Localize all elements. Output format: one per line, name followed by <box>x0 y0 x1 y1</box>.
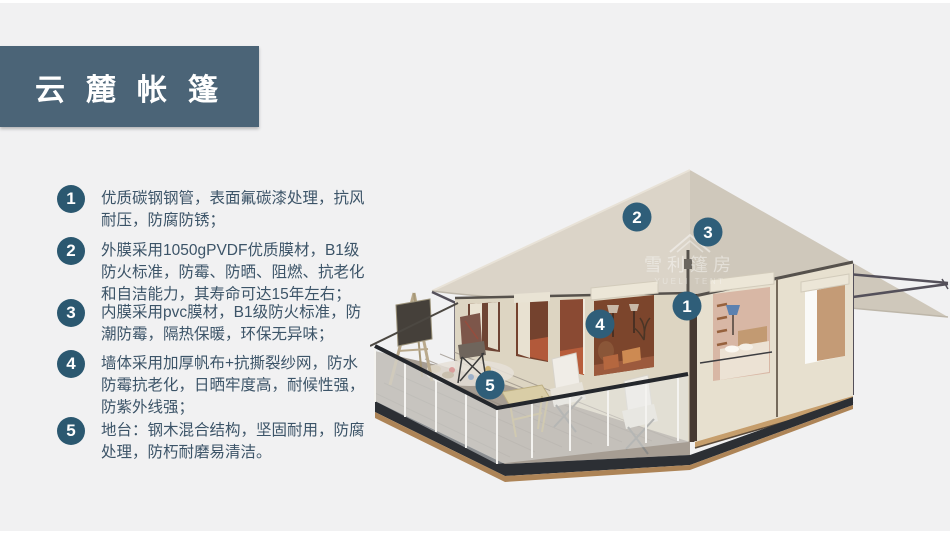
watermark-en-text: YUELI TENT <box>654 277 725 286</box>
feature-text: 内膜采用pvc膜材，B1级防火标准，防潮防霉，隔热保暖，环保无异味； <box>101 302 373 346</box>
feature-item-1: 1 优质碳钢钢管，表面氟碳漆处理，抗风耐压，防腐防锈； <box>57 188 387 232</box>
feature-item-4: 4 墙体采用加厚帆布+抗撕裂纱网，防水防霉抗老化，日晒牢度高，耐候性强，防紫外线… <box>57 353 387 419</box>
badge-number: 3 <box>66 303 75 323</box>
svg-text:3: 3 <box>703 223 712 242</box>
tent-right-wall <box>695 262 853 448</box>
floor-pouf <box>442 372 454 379</box>
watermark-cn-text: 雪利篷房 <box>644 255 736 275</box>
feature-number-badge: 5 <box>57 417 85 445</box>
feature-item-5: 5 地台：钢木混合结构，坚固耐用，防腐处理，防朽耐磨易清洁。 <box>57 420 387 464</box>
svg-text:5: 5 <box>485 376 494 395</box>
badge-number: 4 <box>66 354 75 374</box>
feature-item-3: 3 内膜采用pvc膜材，B1级防火标准，防潮防霉，隔热保暖，环保无异味； <box>57 302 387 346</box>
tent-marker-5: 5 <box>476 371 505 400</box>
slide-background: 云麓帐篷 1 优质碳钢钢管，表面氟碳漆处理，抗风耐压，防腐防锈； 2 外膜采用1… <box>0 3 950 531</box>
feature-number-badge: 4 <box>57 350 85 378</box>
feature-text: 外膜采用1050gPVDF优质膜材，B1级防火标准，防霉、防晒、阻燃、抗老化和自… <box>101 240 373 306</box>
feature-number-badge: 3 <box>57 299 85 327</box>
svg-text:1: 1 <box>682 297 691 316</box>
title-banner: 云麓帐篷 <box>0 46 259 127</box>
page-title: 云麓帐篷 <box>0 65 239 109</box>
tent-marker-4: 4 <box>586 310 615 339</box>
svg-text:4: 4 <box>595 315 605 334</box>
badge-number: 5 <box>66 421 75 441</box>
feature-text: 优质碳钢钢管，表面氟碳漆处理，抗风耐压，防腐防锈； <box>101 188 373 232</box>
tent-marker-3: 3 <box>694 218 723 247</box>
svg-text:2: 2 <box>632 208 641 227</box>
feature-number-badge: 2 <box>57 237 85 265</box>
tent-marker-2: 2 <box>623 203 652 232</box>
badge-number: 1 <box>66 189 75 209</box>
feature-text: 墙体采用加厚帆布+抗撕裂纱网，防水防霉抗老化，日晒牢度高，耐候性强，防紫外线强； <box>101 353 373 419</box>
feature-text: 地台：钢木混合结构，坚固耐用，防腐处理，防朽耐磨易清洁。 <box>101 420 373 464</box>
feature-number-badge: 1 <box>57 185 85 213</box>
feature-item-2: 2 外膜采用1050gPVDF优质膜材，B1级防火标准，防霉、防晒、阻燃、抗老化… <box>57 240 387 306</box>
tent-marker-1: 1 <box>673 292 702 321</box>
badge-number: 2 <box>66 241 75 261</box>
tent-illustration: 雪利篷房 YUELI TENT 12345 <box>370 155 950 485</box>
